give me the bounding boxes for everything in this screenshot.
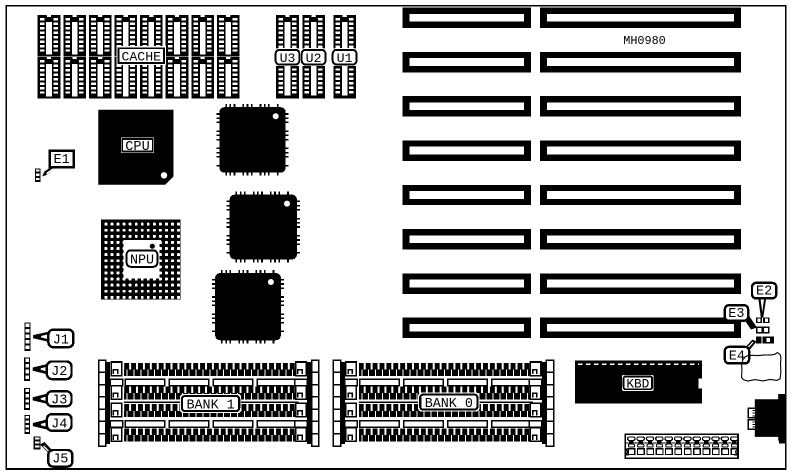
svg-text:NPU: NPU bbox=[130, 253, 154, 268]
svg-text:BANK 1: BANK 1 bbox=[186, 398, 234, 413]
svg-text:J1: J1 bbox=[53, 333, 69, 348]
svg-text:CPU: CPU bbox=[125, 140, 149, 155]
svg-text:U3: U3 bbox=[280, 51, 296, 66]
svg-text:U2: U2 bbox=[306, 51, 322, 66]
svg-text:MH0980: MH0980 bbox=[623, 34, 665, 48]
svg-text:J2: J2 bbox=[51, 365, 67, 380]
svg-text:U1: U1 bbox=[337, 51, 353, 66]
svg-text:BANK 0: BANK 0 bbox=[425, 397, 473, 412]
svg-text:J3: J3 bbox=[51, 394, 67, 409]
svg-text:J4: J4 bbox=[51, 417, 67, 432]
svg-text:KBD: KBD bbox=[626, 376, 649, 391]
svg-text:E3: E3 bbox=[728, 307, 744, 322]
svg-text:J5: J5 bbox=[52, 452, 68, 467]
svg-text:E1: E1 bbox=[53, 153, 69, 168]
svg-text:E2: E2 bbox=[756, 285, 772, 300]
svg-text:CACHE: CACHE bbox=[121, 49, 161, 64]
